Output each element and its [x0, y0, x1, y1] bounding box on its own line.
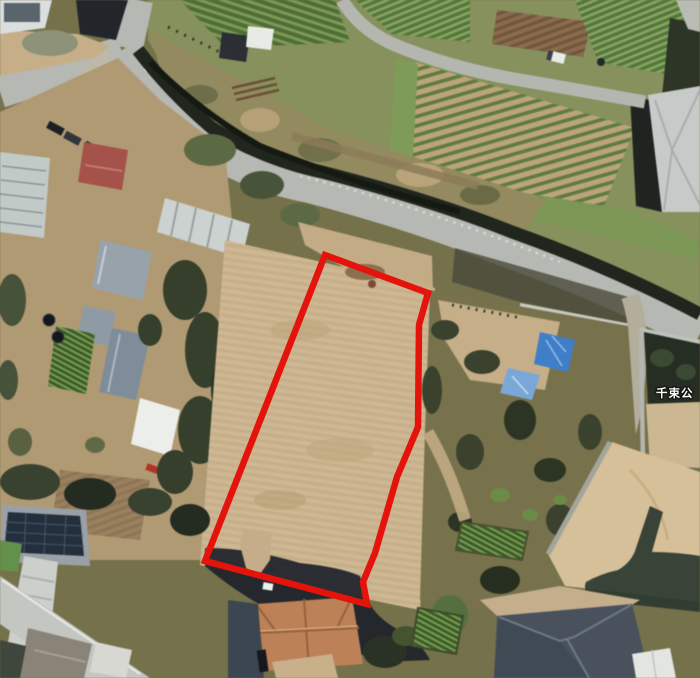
satellite-map-viewport[interactable]: 千束公 — [0, 0, 700, 678]
dark-shed-roof — [219, 32, 250, 62]
park-place-label: 千束公 — [656, 386, 694, 400]
rubble-mound — [22, 30, 78, 56]
water-tank2 — [52, 331, 64, 343]
dark-car-dot — [597, 58, 605, 66]
road-north-branch — [128, 0, 138, 48]
water-tank — [43, 314, 55, 326]
park-wall-side — [641, 330, 643, 465]
white-shed-roof — [246, 26, 274, 50]
dark-roof-left — [228, 600, 264, 678]
garden-bed-south — [412, 608, 463, 654]
rooftop-panels — [4, 3, 40, 22]
